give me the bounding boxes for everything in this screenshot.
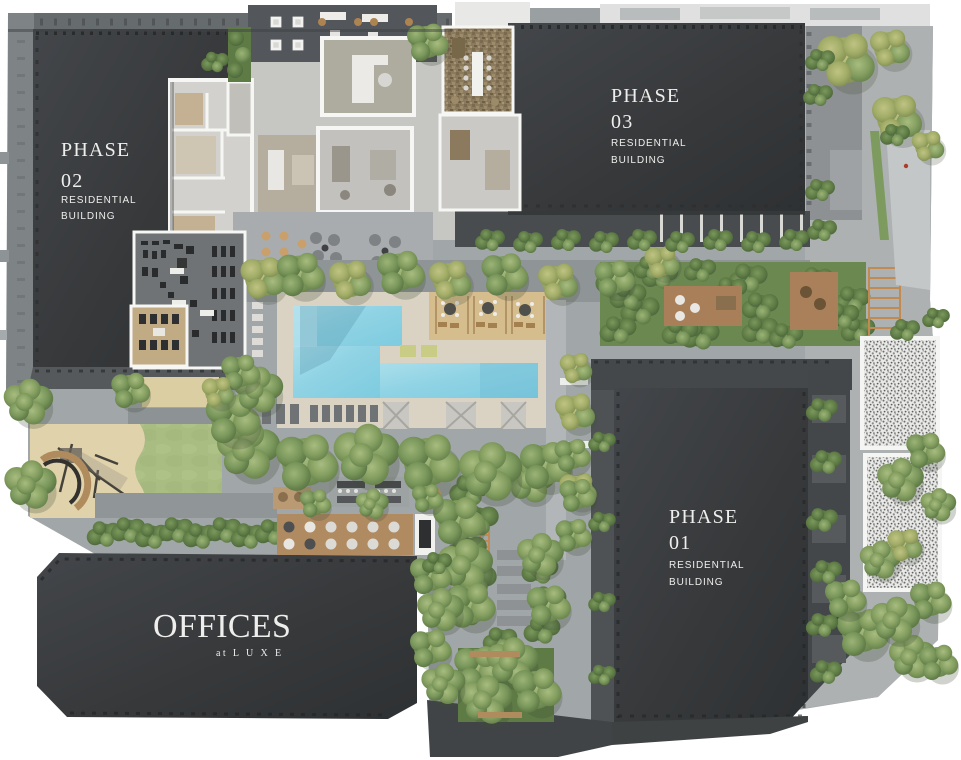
svg-text:BUILDING: BUILDING [61, 211, 115, 222]
svg-text:02: 02 [61, 170, 83, 192]
svg-text:PHASE: PHASE [61, 139, 130, 161]
svg-text:OFFICES: OFFICES [153, 608, 291, 645]
svg-text:01: 01 [669, 532, 691, 554]
svg-text:BUILDING: BUILDING [611, 155, 665, 166]
svg-text:BUILDING: BUILDING [669, 577, 723, 588]
svg-text:RESIDENTIAL: RESIDENTIAL [611, 138, 686, 149]
svg-text:PHASE: PHASE [611, 85, 680, 107]
svg-text:PHASE: PHASE [669, 506, 738, 528]
svg-text:RESIDENTIAL: RESIDENTIAL [669, 560, 744, 571]
svg-text:at L U X E: at L U X E [216, 648, 284, 659]
svg-text:03: 03 [611, 111, 633, 133]
svg-text:RESIDENTIAL: RESIDENTIAL [61, 195, 136, 206]
